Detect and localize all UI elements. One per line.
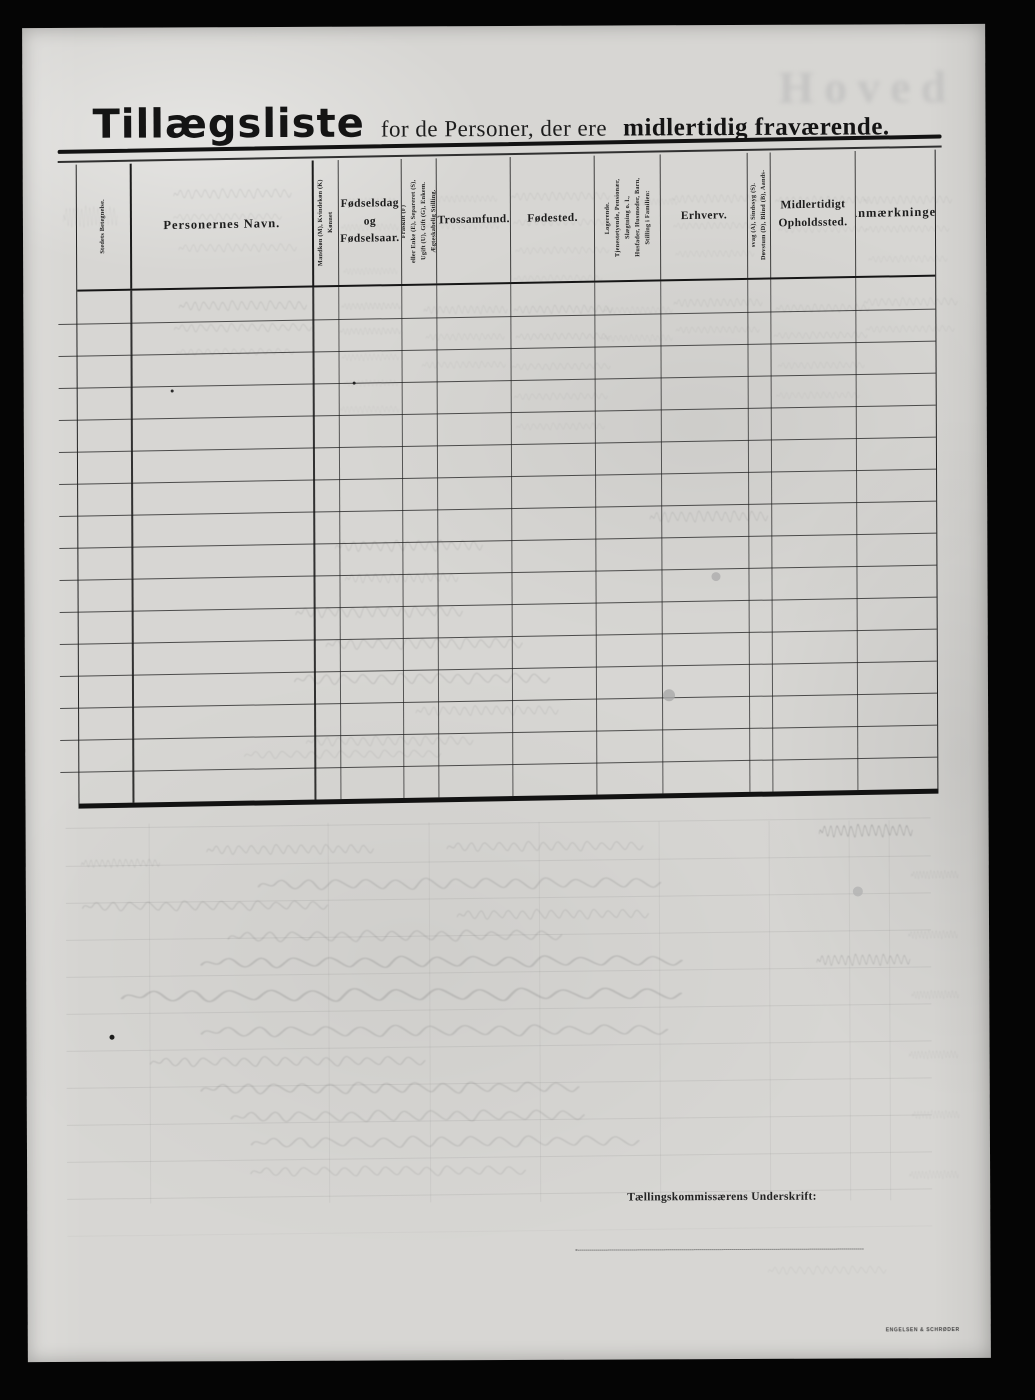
table-cell-empty <box>403 349 438 382</box>
column-header-label: Døvstum (D), Blind (B), Aands- svag (A),… <box>749 170 770 261</box>
table-cell-empty <box>663 696 750 730</box>
table-cell-empty <box>663 600 750 634</box>
table-cell-empty <box>134 735 316 770</box>
ink-speck <box>663 689 675 701</box>
table-cell-empty <box>661 280 748 314</box>
table-cell-empty <box>662 344 749 378</box>
table-cell-empty <box>339 414 403 447</box>
table-cell-empty <box>79 739 134 772</box>
table-cell-empty <box>78 419 133 452</box>
table-cell-empty <box>772 534 857 567</box>
table-cell-empty <box>750 760 773 792</box>
column-header-erhverv: Erhverv. <box>661 153 748 280</box>
bleedthrough-scribble <box>908 929 958 941</box>
bleedthrough-scribble <box>198 953 688 971</box>
table-cell-empty <box>133 543 315 578</box>
table-cell-empty <box>857 437 936 470</box>
page-title: Tillægsliste for de Personer, der ere mi… <box>92 98 889 147</box>
table-cell-empty <box>314 287 339 319</box>
bleedthrough-scribble <box>909 1169 959 1181</box>
column-header-aegteskabelig: Ægteskabelig Stilling. Ugift (U), Gift (… <box>402 158 438 284</box>
table-cell-empty <box>597 729 663 762</box>
table-cell-empty <box>78 547 133 580</box>
table-cell-empty <box>404 605 439 638</box>
table-cell-empty <box>857 501 936 534</box>
table-cell-empty <box>403 445 438 478</box>
table-cell-empty <box>773 694 858 727</box>
table-cell-empty <box>512 443 596 476</box>
table-cell-empty <box>438 476 512 509</box>
table-cell-empty <box>857 533 936 566</box>
table-cell-empty <box>773 662 858 695</box>
table-cell-empty <box>597 697 663 730</box>
table-cell-empty <box>134 767 316 802</box>
table-cell-empty <box>403 477 438 510</box>
table-cell-empty <box>596 377 662 410</box>
table-cell-empty <box>315 575 340 607</box>
table-cell-empty <box>134 703 316 738</box>
table-cell-empty <box>597 633 663 666</box>
table-cell-empty <box>856 309 935 342</box>
table-cell-empty <box>773 598 858 631</box>
table-cell-empty <box>439 604 513 637</box>
table-cell-empty <box>79 707 134 740</box>
signature-line <box>575 1248 863 1250</box>
bleedthrough-scribble <box>819 822 914 840</box>
bleedthrough-column-rule <box>539 822 542 1202</box>
bleedthrough-column-rule <box>769 821 772 1201</box>
table-cell-empty <box>772 342 857 375</box>
column-header-label: Ægteskabelig Stilling. Ugift (U), Gift (… <box>402 179 438 263</box>
table-cell-empty <box>438 316 512 349</box>
table-cell-empty <box>440 764 514 797</box>
table-cell-empty <box>857 565 936 598</box>
table-cell-empty <box>596 441 662 474</box>
page-title-main: Tillægsliste <box>92 101 364 148</box>
ink-speck <box>109 1035 114 1040</box>
table-cell-empty <box>340 606 404 639</box>
table-cell-empty <box>858 757 937 790</box>
bleedthrough-rule <box>66 892 931 904</box>
table-cell-empty <box>439 572 513 605</box>
table-cell-empty <box>438 348 512 381</box>
table-cell-empty <box>404 733 439 766</box>
table-cell-empty <box>79 579 134 612</box>
table-cell-empty <box>132 319 314 354</box>
table-cell-empty <box>858 693 937 726</box>
bleedthrough-rule <box>66 1003 931 1015</box>
table-cell-empty <box>858 629 937 662</box>
table-cell-empty <box>749 440 772 472</box>
table-cell-empty <box>314 351 339 383</box>
table-cell-empty <box>857 405 936 438</box>
table-cell-empty <box>773 758 858 791</box>
column-header-label: Erhverv. <box>681 207 727 226</box>
column-header-label: Personernes Navn. <box>163 214 280 235</box>
table-cell-empty <box>749 568 772 600</box>
table-cell-empty <box>133 415 315 450</box>
table-cell-empty <box>663 568 750 602</box>
table-cell-empty <box>79 675 134 708</box>
column-header-label: Anmærkninger <box>856 202 935 223</box>
table-cell-empty <box>750 664 773 696</box>
column-header-stedets: Stedets Betegnelse. <box>77 164 132 290</box>
table-cell-empty <box>662 472 749 506</box>
column-header-anmaerkninger: Anmærkninger <box>856 150 935 276</box>
table-cell-empty <box>662 376 749 410</box>
table-cell-empty <box>858 725 937 758</box>
table-cell-empty <box>773 566 858 599</box>
bleedthrough-rule <box>67 1077 932 1089</box>
table-cell-empty <box>513 571 597 604</box>
table-cell-empty <box>663 664 750 698</box>
table-cell-empty <box>339 350 403 383</box>
table-cell-empty <box>513 731 597 764</box>
table-cell-empty <box>596 313 662 346</box>
table-cell-empty <box>132 351 314 386</box>
table-cell-empty <box>663 728 750 762</box>
table-cell-empty <box>339 382 403 415</box>
table-cell-empty <box>439 636 513 669</box>
table-cell-empty <box>78 451 133 484</box>
table-cell-empty <box>79 643 134 676</box>
table-cell-empty <box>512 411 596 444</box>
column-header-fodested: Fødested. <box>511 156 596 282</box>
page-title-bold: midlertidig fraværende. <box>623 113 890 142</box>
bleedthrough-rule <box>66 817 931 829</box>
table-cell-empty <box>772 470 857 503</box>
ink-speck <box>711 572 720 581</box>
table-cell-empty <box>403 317 438 350</box>
column-header-dovstum: Døvstum (D), Blind (B), Aands- svag (A),… <box>748 153 772 278</box>
table-cell-empty <box>439 540 513 573</box>
table-cell-empty <box>340 638 404 671</box>
table-cell-empty <box>856 341 935 374</box>
table-cell-empty <box>750 632 773 664</box>
table-cell-empty <box>748 280 771 312</box>
table-cell-empty <box>513 667 597 700</box>
table-cell-empty <box>315 511 340 543</box>
table-cell-empty <box>316 671 341 703</box>
table-cell-empty <box>597 665 663 698</box>
table-cell-empty <box>662 504 749 538</box>
bleedthrough-rule <box>67 1151 932 1163</box>
table-cell-empty <box>438 444 512 477</box>
table-cell-empty <box>403 413 438 446</box>
column-header-label: Midlertidigt Opholdssted. <box>778 196 847 233</box>
table-cell-empty <box>512 379 596 412</box>
table-cell-empty <box>513 635 597 668</box>
column-header-midlertidigt: Midlertidigt Opholdssted. <box>771 151 856 277</box>
table-cell-empty <box>403 509 438 542</box>
table-cell-empty <box>439 700 513 733</box>
table-cell-empty <box>513 603 597 636</box>
table-cell-empty <box>78 483 133 516</box>
table-cell-empty <box>512 507 596 540</box>
table-cell-empty <box>771 278 856 311</box>
printer-mark: ENGELSEN & SCHRØDER <box>886 1327 960 1333</box>
table-cell-empty <box>512 539 596 572</box>
bleedthrough-rule <box>66 855 931 867</box>
table-cell-empty <box>513 699 597 732</box>
column-header-label: Stedets Betegnelse. <box>98 199 108 254</box>
table-cell-empty <box>439 508 513 541</box>
table-cell-empty <box>315 543 340 575</box>
table-cell-empty <box>78 515 133 548</box>
census-table: Stedets Betegnelse.Personernes Navn.Kønn… <box>58 135 945 809</box>
table-cell-empty <box>749 472 772 504</box>
table-cell-empty <box>662 312 749 346</box>
table-cell-empty <box>512 475 596 508</box>
table-cell-empty <box>438 412 512 445</box>
table-cell-empty <box>772 502 857 535</box>
table-cell-empty <box>77 291 132 324</box>
table-cell-empty <box>663 632 750 666</box>
ink-speck <box>171 389 174 392</box>
column-header-navn: Personernes Navn. <box>132 160 314 288</box>
column-header-label: Stilling i Familien: Husfader, Husmoder,… <box>602 178 653 258</box>
column-header-label: Fødested. <box>527 209 578 228</box>
table-cell-empty <box>773 726 858 759</box>
bleedthrough-scribble <box>456 907 651 922</box>
table-cell-empty <box>133 447 315 482</box>
column-header-stilling: Stilling i Familien: Husfader, Husmoder,… <box>595 154 662 280</box>
table-cell-empty <box>511 283 595 316</box>
table-cell-empty <box>663 536 750 570</box>
table-cell-empty <box>403 381 438 414</box>
table-cell-empty <box>597 569 663 602</box>
table-cell-empty <box>314 383 339 415</box>
table-cell-empty <box>857 373 936 406</box>
bleedthrough-rule <box>67 1114 932 1126</box>
bleedthrough-scribble <box>446 839 646 854</box>
table-cell-empty <box>439 668 513 701</box>
table-cell-empty <box>749 504 772 536</box>
table-cell-empty <box>134 607 316 642</box>
table-cell-empty <box>79 611 134 644</box>
table-cell-empty <box>662 408 749 442</box>
table-cell-empty <box>662 440 749 474</box>
scanned-census-page: Hoved Tillægsliste for de Personer, der … <box>22 24 991 1362</box>
table-cell-empty <box>340 446 404 479</box>
bleedthrough-scribble <box>256 875 666 893</box>
table-cell-empty <box>438 284 512 317</box>
table-cell-empty <box>134 639 316 674</box>
bleedthrough-scribble <box>249 1133 644 1151</box>
column-header-konnet: Kønnet Mandkøn (M), Kvindekøn (K) <box>313 160 338 285</box>
table-cell-empty <box>316 639 341 671</box>
table-cell-empty <box>339 318 403 351</box>
page-title-mid: for de Personer, der ere <box>381 116 607 143</box>
table-cell-empty <box>748 344 771 376</box>
table-cell-empty <box>440 732 514 765</box>
bleedthrough-scribble <box>149 1054 429 1069</box>
table-cell-empty <box>314 319 339 351</box>
bleedthrough-column-rule <box>659 821 662 1201</box>
ink-speck <box>353 382 356 385</box>
table-cell-empty <box>857 469 936 502</box>
table-cell-empty <box>404 765 439 798</box>
bleedthrough-rule <box>67 1225 932 1237</box>
table-cell-empty <box>597 537 663 570</box>
table-cell-empty <box>339 286 403 319</box>
table-cell-empty <box>513 763 597 796</box>
bleedthrough-scribble <box>909 1049 959 1061</box>
bleedthrough-scribble <box>249 1164 529 1179</box>
table-cell-empty <box>404 573 439 606</box>
table-cell-empty <box>404 701 439 734</box>
table-cell-empty <box>596 409 662 442</box>
table-cell-empty <box>858 661 937 694</box>
ink-speck <box>853 886 863 896</box>
bleedthrough-column-rule <box>328 823 331 1203</box>
table-cell-empty <box>315 607 340 639</box>
table-cell-empty <box>773 630 858 663</box>
table-cell-empty <box>749 536 772 568</box>
table-cell-empty <box>315 415 340 447</box>
table-cell-empty <box>341 670 405 703</box>
table-cell-empty <box>133 511 315 546</box>
table-cell-empty <box>749 376 772 408</box>
bleedthrough-scribble <box>911 869 959 881</box>
bleedthrough-scribble <box>767 1264 887 1277</box>
table-cell-empty <box>340 478 404 511</box>
table-cell-empty <box>316 735 341 767</box>
bleedthrough-rule <box>67 1040 932 1052</box>
signature-label: Tællingskommissærens Underskrift: <box>627 1191 817 1204</box>
bleedthrough-rule <box>66 929 931 941</box>
table-cell-empty <box>78 355 133 388</box>
table-cell-empty <box>340 510 404 543</box>
table-cell-empty <box>78 387 133 420</box>
bleedthrough-column-rule <box>429 822 432 1202</box>
bleedthrough-scribble <box>118 985 688 1005</box>
table-cell-empty <box>77 323 132 356</box>
table-cell-empty <box>772 438 857 471</box>
table-cell-empty <box>749 408 772 440</box>
column-header-label: Fødselsdag og Fødselsaar. <box>340 195 399 249</box>
table-cell-empty <box>597 601 663 634</box>
table-cell-empty <box>133 383 315 418</box>
table-cell-empty <box>316 703 341 735</box>
table-cell-empty <box>511 315 595 348</box>
table-cell-empty <box>402 285 437 318</box>
table-cell-empty <box>316 767 341 799</box>
table-cell-empty <box>750 696 773 728</box>
column-header-label: Kønnet Mandkøn (M), Kvindekøn (K) <box>315 179 336 266</box>
table-cell-empty <box>772 406 857 439</box>
table-cell-empty <box>133 479 315 514</box>
table-cell-empty <box>750 600 773 632</box>
table-cell-empty <box>596 345 662 378</box>
column-header-fodselsdag: Fødselsdag og Fødselsaar. <box>338 159 402 285</box>
table-cell-empty <box>597 761 663 794</box>
table-cell-empty <box>595 281 661 314</box>
table-header-row: Stedets Betegnelse.Personernes Navn.Kønn… <box>77 150 935 292</box>
table-cell-empty <box>750 728 773 760</box>
bleedthrough-scribble <box>198 1022 673 1040</box>
table-cell-empty <box>341 734 405 767</box>
table-cell-empty <box>771 310 856 343</box>
table-cell-empty <box>132 287 314 322</box>
table-cell-empty <box>134 671 316 706</box>
column-header-label: Trossamfund. <box>437 211 510 230</box>
table-cell-empty <box>340 542 404 575</box>
table-cell-empty <box>438 380 512 413</box>
table-cell-empty <box>596 505 662 538</box>
table-cell-empty <box>315 447 340 479</box>
table-cell-empty <box>341 702 405 735</box>
bleedthrough-rule <box>66 966 931 978</box>
bleedthrough-column-rule <box>849 821 852 1201</box>
table-grid: Stedets Betegnelse.Personernes Navn.Kønn… <box>76 150 939 809</box>
column-header-trossamfund: Trossamfund. <box>437 157 511 283</box>
table-cell-empty <box>512 347 596 380</box>
table-cell-empty <box>772 374 857 407</box>
table-cell-empty <box>748 312 771 344</box>
table-cell-empty <box>856 277 935 310</box>
bleedthrough-scribble <box>911 989 959 1001</box>
table-cell-empty <box>341 766 405 799</box>
table-cell-empty <box>403 541 438 574</box>
bleedthrough-scribble <box>206 843 376 858</box>
table-cell-empty <box>133 575 315 610</box>
table-cell-empty <box>664 760 751 794</box>
table-cell-empty <box>404 669 439 702</box>
table-cell-empty <box>340 574 404 607</box>
bleedthrough-column-rule <box>889 820 892 1200</box>
table-cell-empty <box>404 637 439 670</box>
table-cell-empty <box>858 597 937 630</box>
table-cell-empty <box>315 479 340 511</box>
table-cell-empty <box>596 473 662 506</box>
table-cell-empty <box>79 771 134 804</box>
